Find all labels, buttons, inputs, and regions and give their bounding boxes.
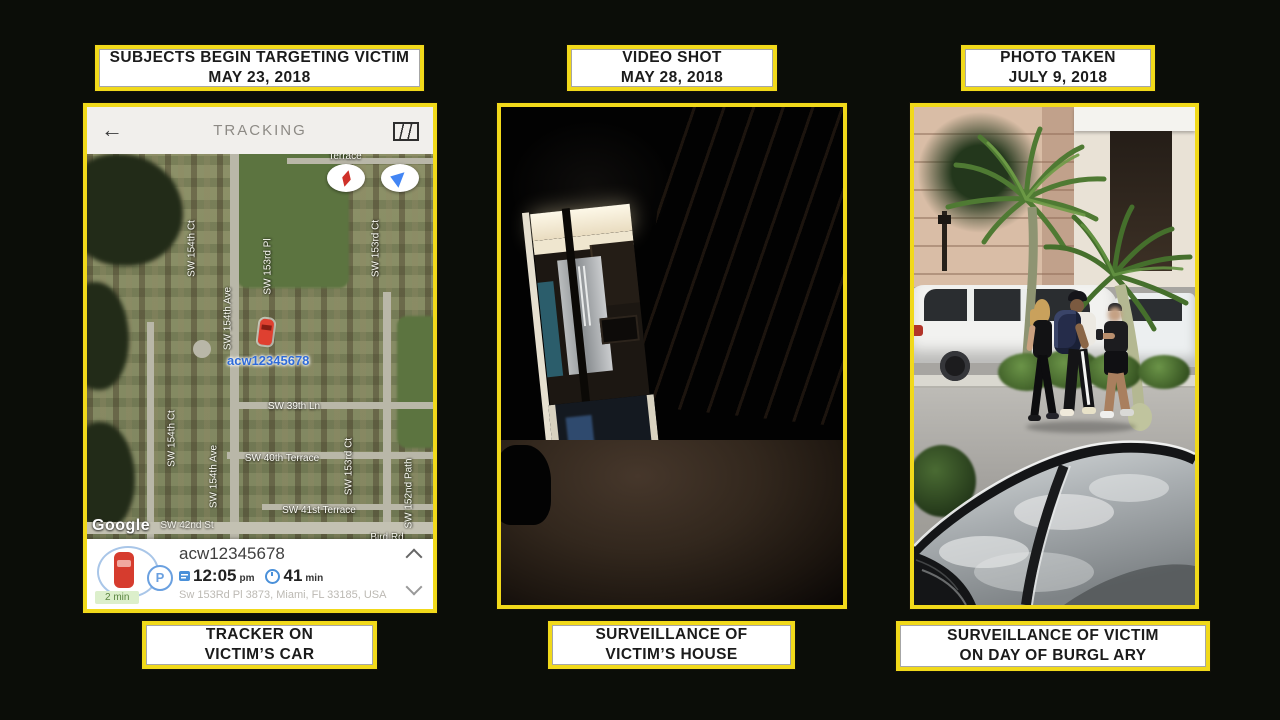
caption-line: SURVEILLANCE OF [595,625,747,645]
caption-line: ON DAY OF BURGL ARY [959,646,1146,666]
caption-line: VIDEO SHOT [622,48,722,68]
back-arrow-icon[interactable]: ← [101,117,123,143]
tracker-info-card: P acw12345678 12:05 pm 41 min Sw 153Rd P… [87,539,433,609]
street-label: SW 40th Terrace [245,453,319,464]
compass-button[interactable] [327,164,365,192]
time-row: 12:05 pm 41 min [179,566,323,586]
lit-kitchen-window [503,188,689,463]
blurred-face [1108,307,1122,322]
time-unit: pm [239,573,254,584]
tracked-car-marker[interactable] [257,318,274,346]
address-text: Sw 153Rd Pl 3873, Miami, FL 33185, USA [179,589,386,601]
clock-icon [265,569,280,584]
street-label: SW 153rd Ct [371,213,382,285]
caption-bottom-middle: SURVEILLANCE OF VICTIM’S HOUSE [548,621,795,669]
caption-line: VICTIM’S HOUSE [605,645,737,665]
map-lake [87,282,129,390]
foreground-sedan [914,402,1195,605]
depart-time-icon [179,571,190,581]
kitchen-interior [533,231,650,406]
day-surveillance-photo [910,103,1199,609]
map-road [383,292,391,539]
street-label-partial: Bird Rd [370,532,403,539]
map-road [147,322,154,539]
caption-line: JULY 9, 2018 [1009,68,1108,88]
chevron-down-icon[interactable] [406,579,423,596]
parking-icon: P [147,565,173,591]
street-label-partial: SW 42nd St [160,520,213,531]
map-canvas[interactable]: SW 154th Ct SW 153rd Pl SW 153rd Ct SW 1… [87,154,433,539]
caption-top-middle: VIDEO SHOT MAY 28, 2018 [567,45,777,91]
tracker-id: acw12345678 [179,544,285,564]
street-label: SW 153rd Ct [344,431,355,503]
black-top [1033,320,1052,358]
phone-header: ← TRACKING [87,107,433,154]
navigation-button[interactable] [381,164,419,192]
night-house-photo [497,103,847,609]
caption-line: PHOTO TAKEN [1000,48,1116,68]
map-lake [87,422,135,530]
phone-in-hand [1096,329,1103,340]
caption-line: MAY 23, 2018 [208,68,310,88]
tracked-car-label: acw12345678 [227,353,309,368]
street-label: SW 41st Terrace [282,505,356,516]
street-label: SW 39th Ln [268,401,320,412]
tracking-title: TRACKING [87,122,433,139]
caption-line: SUBJECTS BEGIN TARGETING VICTIM [110,48,410,68]
caption-line: MAY 28, 2018 [621,68,723,88]
caption-bottom-right: SURVEILLANCE OF VICTIM ON DAY OF BURGL A… [896,621,1210,671]
street-label: SW 153rd Pl [263,231,274,303]
caption-top-right: PHOTO TAKEN JULY 9, 2018 [961,45,1155,91]
chevron-up-icon[interactable] [406,549,423,566]
car-icon [114,552,134,588]
map-park [397,316,433,448]
wall-oven [599,315,640,345]
street-label: SW 154th Ct [167,403,178,475]
google-logo: Google [92,517,150,535]
time-value: 12:05 [193,566,236,586]
concrete-patio [501,440,843,605]
chair-silhouette [497,445,551,525]
duration-value: 41 [283,566,302,586]
caption-top-left: SUBJECTS BEGIN TARGETING VICTIM MAY 23, … [95,45,424,91]
street-label: SW 154th Ave [209,441,220,513]
street-label: SW 154th Ave [223,283,234,355]
map-road [237,402,433,409]
phone-screenshot-panel: ← TRACKING SW 154th Ct SW 153rd Pl SW 15… [83,103,437,613]
hedge-bush [1138,355,1190,389]
caption-line: TRACKER ON [206,625,313,645]
caption-bottom-left: TRACKER ON VICTIM’S CAR [142,621,377,669]
caption-line: SURVEILLANCE OF VICTIM [947,626,1159,646]
navigation-icon [390,168,410,188]
street-label-partial: Terrace [328,154,361,162]
map-lake [87,154,183,266]
street-label: SW 154th Ct [187,213,198,285]
map-culdesac [193,340,211,358]
caption-line: VICTIM’S CAR [205,645,315,665]
eta-badge: 2 min [95,591,139,604]
slide: SUBJECTS BEGIN TARGETING VICTIM MAY 23, … [0,0,1280,720]
map-layers-icon[interactable] [393,122,419,141]
black-shorts [1104,351,1128,375]
street-label: SW 152nd Path [404,458,415,530]
duration-unit: min [305,573,323,584]
compass-icon [338,168,355,188]
